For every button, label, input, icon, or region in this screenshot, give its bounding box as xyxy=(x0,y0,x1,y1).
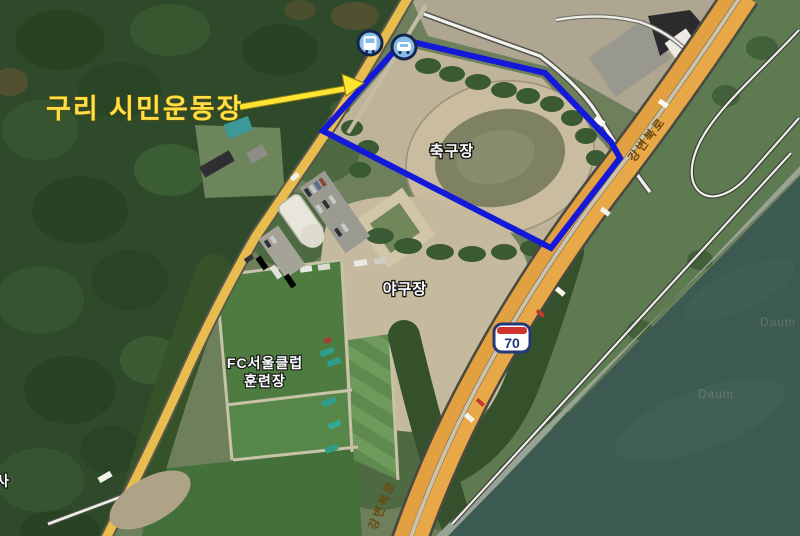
watermark-text: Daum xyxy=(760,315,796,329)
map-title: 구리 시민운동장 xyxy=(46,94,243,124)
label-training-ground-1: FC서울클럽 xyxy=(227,355,303,371)
watermark-text: Daum xyxy=(698,387,734,401)
label-partial-place: 사 xyxy=(0,473,10,489)
map-canvas: Daum Daum xyxy=(0,0,800,536)
route-70-shield: 70 xyxy=(494,324,530,352)
satellite-map[interactable]: Daum Daum xyxy=(0,0,800,536)
car-marker[interactable] xyxy=(392,35,416,59)
label-soccer-field: 축구장 xyxy=(430,142,474,160)
label-baseball-field: 야구장 xyxy=(383,280,427,298)
label-training-ground-2: 훈련장 xyxy=(244,373,286,389)
forest-clearing xyxy=(195,125,285,198)
route-number: 70 xyxy=(504,335,520,351)
bus-stop-marker[interactable] xyxy=(358,31,382,55)
